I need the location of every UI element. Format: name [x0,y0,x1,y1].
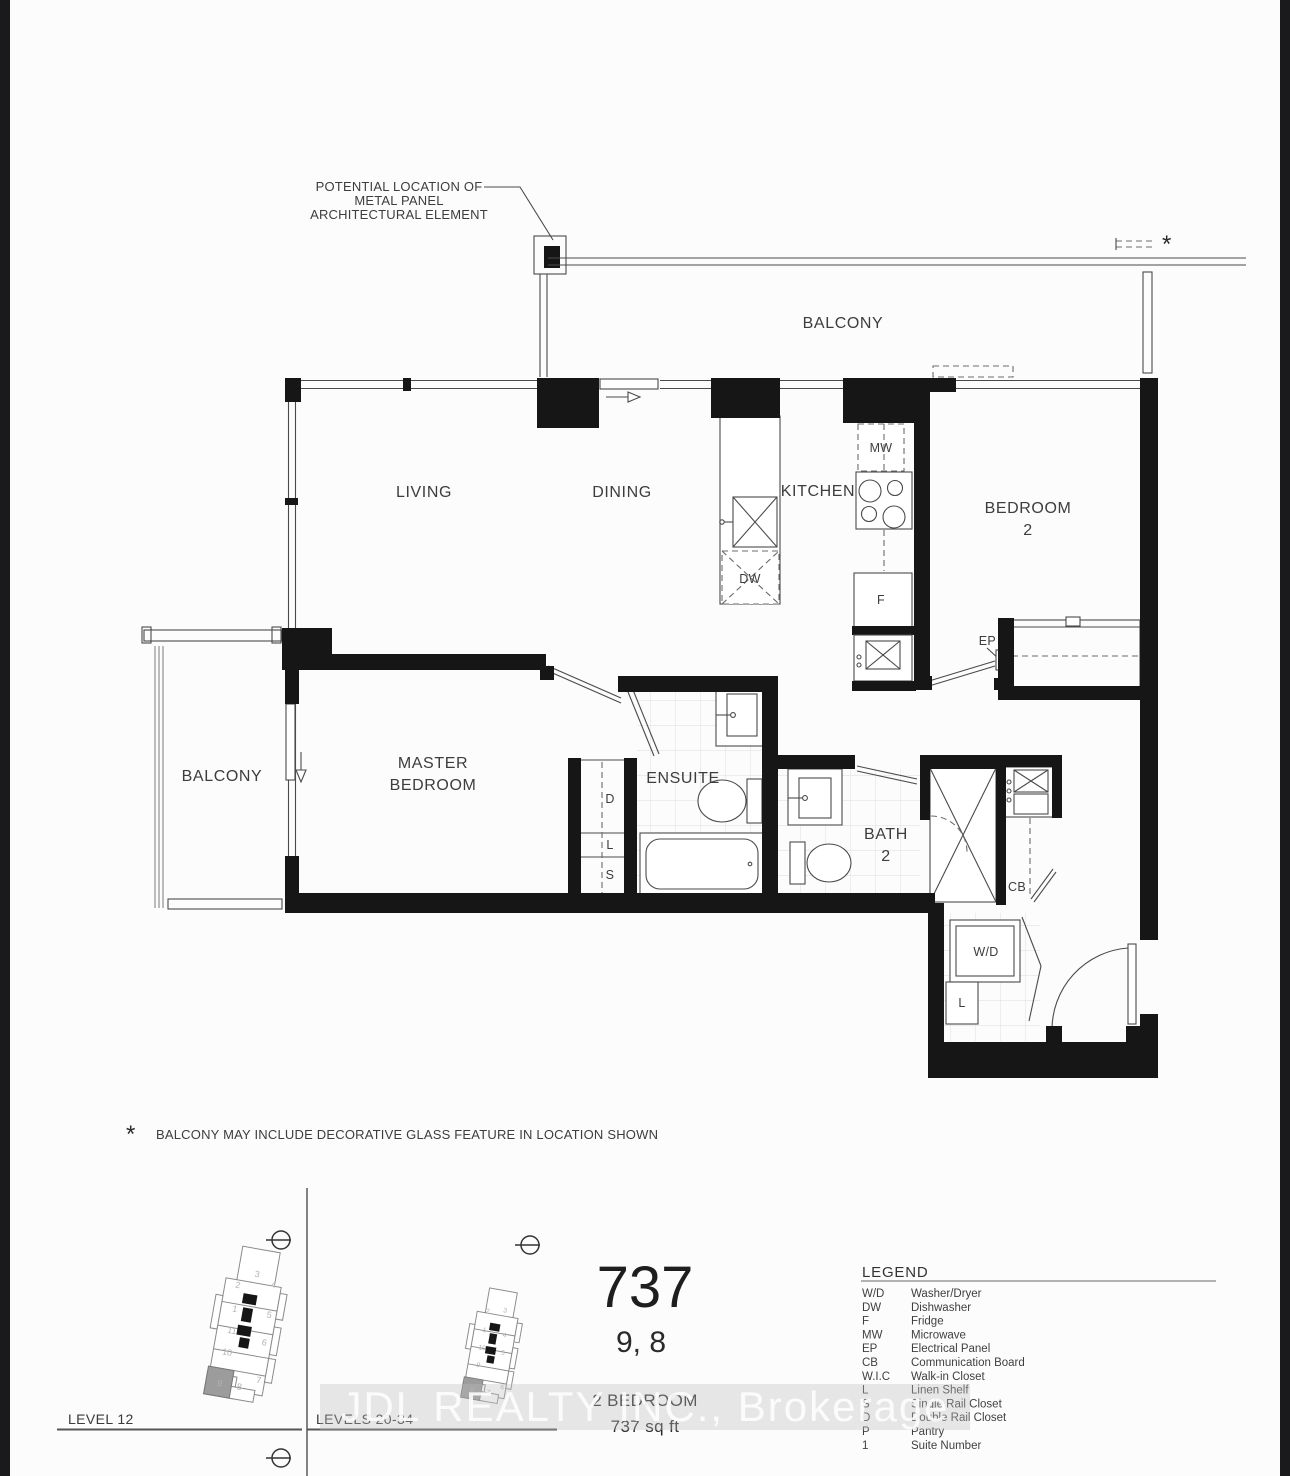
svg-text:Walk-in Closet: Walk-in Closet [911,1371,986,1383]
svg-text:Fridge: Fridge [911,1316,944,1328]
svg-text:CB: CB [862,1357,878,1369]
dining-label: DINING [592,484,652,501]
door-swing-arrow-down [296,770,306,782]
master-label-line1: MASTER [398,755,468,772]
annotation-line2: METAL PANEL [354,193,443,208]
bath2-vanity [788,769,842,825]
metal-panel-annotation: POTENTIAL LOCATION OF METAL PANEL ARCHIT… [310,179,566,274]
footnote-text: BALCONY MAY INCLUDE DECORATIVE GLASS FEA… [156,1127,658,1142]
annotation-leader-line [484,187,553,240]
right-edge-strip [1280,0,1290,1476]
unit-suites: 9, 8 [616,1326,666,1359]
door-swing-arrow-right [628,392,640,402]
kitchen-label: KITCHEN [781,483,855,500]
double-rail-closet-label: D [605,792,614,806]
bath2-label: BATH [864,826,908,843]
mech-cb-closet: CB [1004,767,1056,902]
svg-text:F: F [862,1316,869,1328]
entry-door-leaf [1128,944,1136,1024]
watermark: JDL REALTY INC., Brokerage [320,1383,970,1430]
left-edge-strip [0,0,10,1476]
single-rail-closet-label: S [606,868,615,882]
entry-door-swing [1052,948,1128,1031]
floorplan-page: POTENTIAL LOCATION OF METAL PANEL ARCHIT… [0,0,1290,1476]
svg-text:Dishwasher: Dishwasher [911,1302,971,1314]
glass-asterisk: * [1162,231,1171,258]
communication-board-label: CB [1008,880,1026,894]
legend-title: LEGEND [862,1264,929,1281]
level-12-label: LEVEL 12 [68,1411,134,1427]
bedroom2-number: 2 [1023,522,1033,539]
balcony-left-label: BALCONY [182,768,263,785]
svg-text:Microwave: Microwave [911,1329,966,1341]
balcony-left: BALCONY [142,627,282,909]
balcony-glass-panel [1143,272,1152,373]
footnote-asterisk: * [126,1121,135,1148]
annotation-line1: POTENTIAL LOCATION OF [316,179,483,194]
svg-text:10: 10 [221,1346,233,1358]
svg-text:11: 11 [227,1325,238,1336]
master-balcony-door [286,704,295,780]
electrical-panel-label: EP [979,634,996,648]
keyplan-level-12: 3 4 2 1 5 11 10 6 9 8 7 [199,1243,294,1405]
svg-text:MW: MW [862,1329,883,1341]
bath2-number: 2 [881,848,891,865]
balcony-top: * BALCONY [540,231,1246,377]
microwave-label: MW [870,441,893,455]
master-label-line2: BEDROOM [390,777,477,794]
unit-number: 737 [597,1255,694,1320]
svg-text:Washer/Dryer: Washer/Dryer [911,1288,982,1300]
living-label: LIVING [396,484,452,501]
svg-text:Electrical Panel: Electrical Panel [911,1343,990,1355]
master-closet: D L S [581,760,624,908]
balcony-sliding-door [600,379,658,389]
svg-text:DW: DW [862,1302,881,1314]
annotation-line3: ARCHITECTURAL ELEMENT [310,207,488,222]
kitchen-counter-appliances: MW F [852,424,916,691]
floorplan-drawing: POTENTIAL LOCATION OF METAL PANEL ARCHIT… [0,0,1290,1476]
svg-text:10: 10 [478,1344,487,1352]
fridge-label: F [877,593,885,607]
svg-text:1: 1 [862,1440,868,1452]
bath2-toilet-tank [790,842,805,884]
bedroom2-label: BEDROOM [985,500,1072,517]
svg-text:Suite Number: Suite Number [911,1440,981,1452]
svg-text:W/D: W/D [862,1288,884,1300]
balcony-top-label: BALCONY [803,315,884,332]
svg-text:EP: EP [862,1343,878,1355]
svg-text:W.I.C: W.I.C [862,1371,890,1383]
washer-dryer-label: W/D [973,945,998,959]
svg-text:Communication Board: Communication Board [911,1357,1025,1369]
laundry-linen-label: L [958,996,965,1010]
mechanical-shaft [854,635,912,681]
ensuite-toilet-tank [747,779,762,823]
kitchen-island: DW [720,416,780,604]
footnote: * BALCONY MAY INCLUDE DECORATIVE GLASS F… [126,1121,658,1148]
ensuite-label: ENSUITE [646,770,720,787]
ensuite-tub [640,833,764,895]
bath2-toilet [807,844,851,882]
watermark-text: JDL REALTY INC., Brokerage [340,1383,949,1430]
linen-shelf-label: L [606,838,613,852]
dishwasher-label: DW [739,572,760,586]
